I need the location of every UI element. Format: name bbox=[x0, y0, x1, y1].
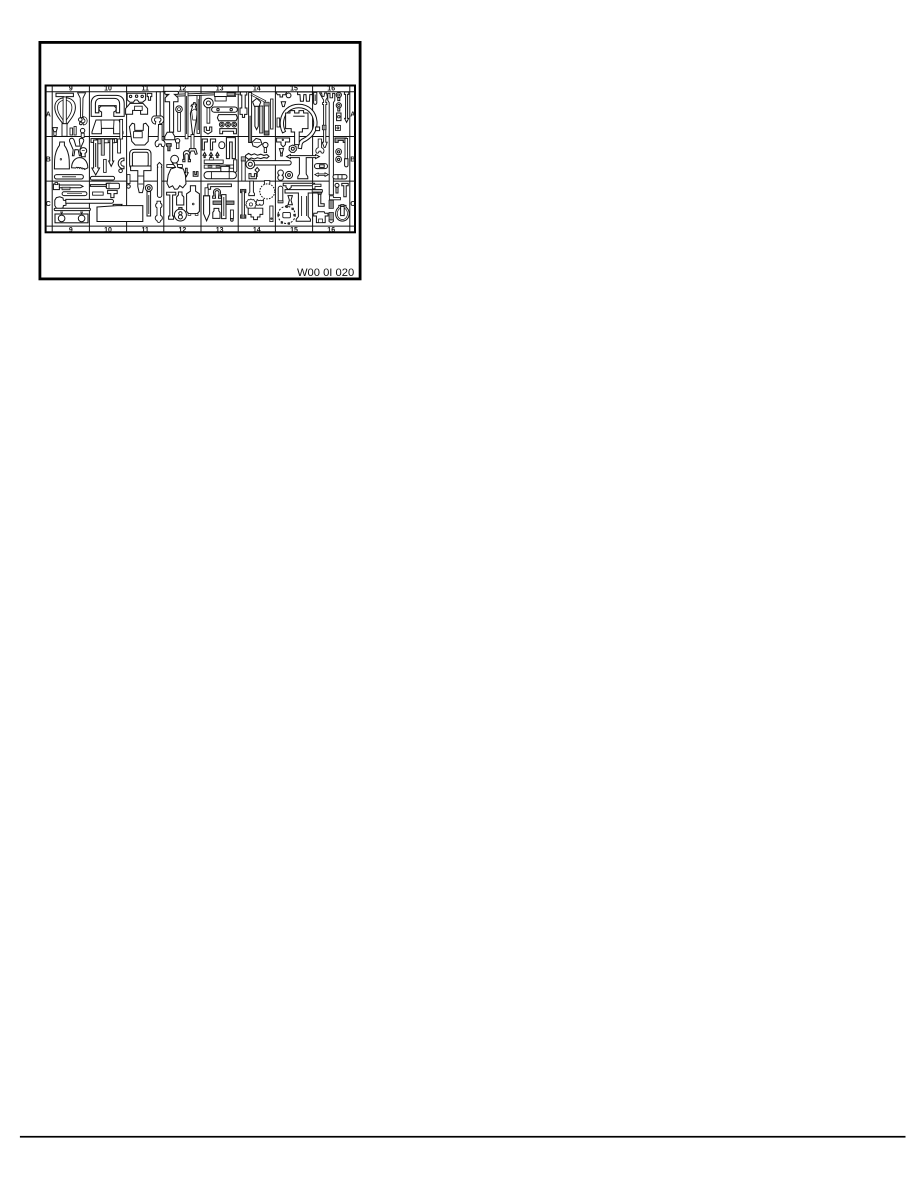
svg-text:16: 16 bbox=[327, 227, 335, 234]
svg-text:A: A bbox=[350, 112, 355, 119]
svg-text:C: C bbox=[46, 201, 51, 208]
svg-text:A: A bbox=[46, 112, 51, 119]
svg-text:C: C bbox=[350, 201, 355, 208]
svg-text:14: 14 bbox=[253, 86, 261, 93]
svg-text:9: 9 bbox=[69, 227, 73, 234]
svg-text:B: B bbox=[46, 156, 51, 163]
svg-text:15: 15 bbox=[290, 227, 298, 234]
svg-text:10: 10 bbox=[104, 86, 112, 93]
svg-text:B: B bbox=[350, 156, 355, 163]
svg-text:13: 13 bbox=[216, 86, 224, 93]
svg-text:14: 14 bbox=[253, 227, 261, 234]
svg-text:11: 11 bbox=[141, 86, 149, 93]
svg-text:11: 11 bbox=[141, 227, 149, 234]
svg-text:16: 16 bbox=[327, 86, 335, 93]
svg-text:15: 15 bbox=[290, 86, 298, 93]
svg-text:W00 0I 020: W00 0I 020 bbox=[297, 267, 354, 279]
svg-text:12: 12 bbox=[179, 227, 187, 234]
svg-text:13: 13 bbox=[216, 227, 224, 234]
svg-text:12: 12 bbox=[179, 86, 187, 93]
svg-text:10: 10 bbox=[104, 227, 112, 234]
svg-text:9: 9 bbox=[69, 86, 73, 93]
